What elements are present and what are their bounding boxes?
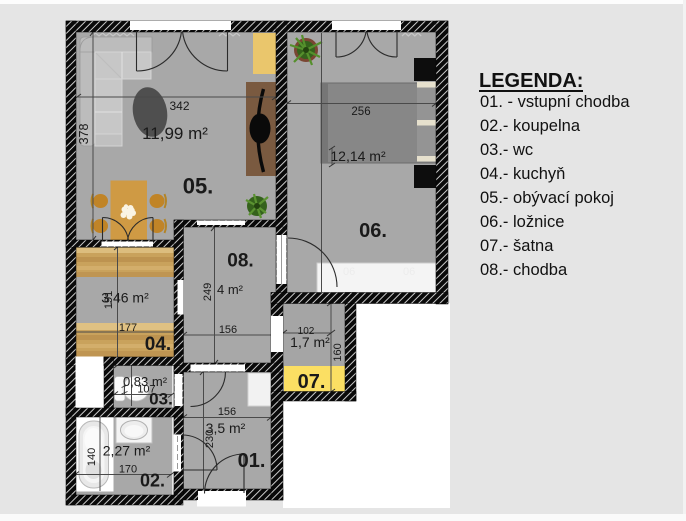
svg-text:04.- kuchyň: 04.- kuchyň bbox=[480, 165, 565, 183]
svg-text:LEGENDA:: LEGENDA: bbox=[479, 70, 583, 92]
svg-text:01.: 01. bbox=[238, 450, 266, 472]
svg-text:160: 160 bbox=[332, 343, 344, 361]
svg-text:03.- wc: 03.- wc bbox=[480, 141, 533, 159]
svg-text:378: 378 bbox=[77, 124, 91, 145]
svg-text:12,14 m²: 12,14 m² bbox=[330, 148, 386, 164]
svg-text:06.: 06. bbox=[359, 220, 387, 242]
svg-text:140: 140 bbox=[86, 448, 98, 466]
svg-text:156: 156 bbox=[218, 406, 236, 418]
svg-text:11,99 m²: 11,99 m² bbox=[142, 124, 208, 143]
svg-text:05.: 05. bbox=[183, 174, 214, 199]
svg-text:170: 170 bbox=[119, 464, 137, 476]
svg-text:07.: 07. bbox=[298, 371, 326, 393]
svg-text:06: 06 bbox=[403, 266, 415, 278]
svg-text:01. - vstupní chodba: 01. - vstupní chodba bbox=[480, 93, 630, 111]
svg-text:08.- chodba: 08.- chodba bbox=[480, 261, 568, 279]
svg-text:230: 230 bbox=[204, 430, 216, 448]
svg-text:2,27 m²: 2,27 m² bbox=[103, 443, 151, 459]
svg-text:191: 191 bbox=[103, 291, 115, 309]
svg-text:03.: 03. bbox=[149, 390, 173, 409]
svg-text:06.- ložnice: 06.- ložnice bbox=[480, 213, 564, 231]
svg-text:06: 06 bbox=[343, 266, 355, 278]
svg-text:177: 177 bbox=[119, 322, 137, 334]
svg-text:02.- koupelna: 02.- koupelna bbox=[480, 117, 581, 135]
svg-text:102: 102 bbox=[298, 326, 315, 337]
svg-text:05.- obývací pokoj: 05.- obývací pokoj bbox=[480, 189, 614, 207]
svg-text:07.- šatna: 07.- šatna bbox=[480, 237, 554, 255]
svg-text:02.: 02. bbox=[140, 471, 165, 491]
svg-text:4 m²: 4 m² bbox=[217, 282, 244, 297]
svg-text:249: 249 bbox=[202, 283, 214, 301]
svg-text:08.: 08. bbox=[227, 251, 253, 272]
svg-text:256: 256 bbox=[351, 106, 370, 118]
svg-text:04.: 04. bbox=[145, 334, 171, 355]
svg-text:342: 342 bbox=[169, 99, 189, 113]
svg-text:156: 156 bbox=[219, 324, 237, 336]
